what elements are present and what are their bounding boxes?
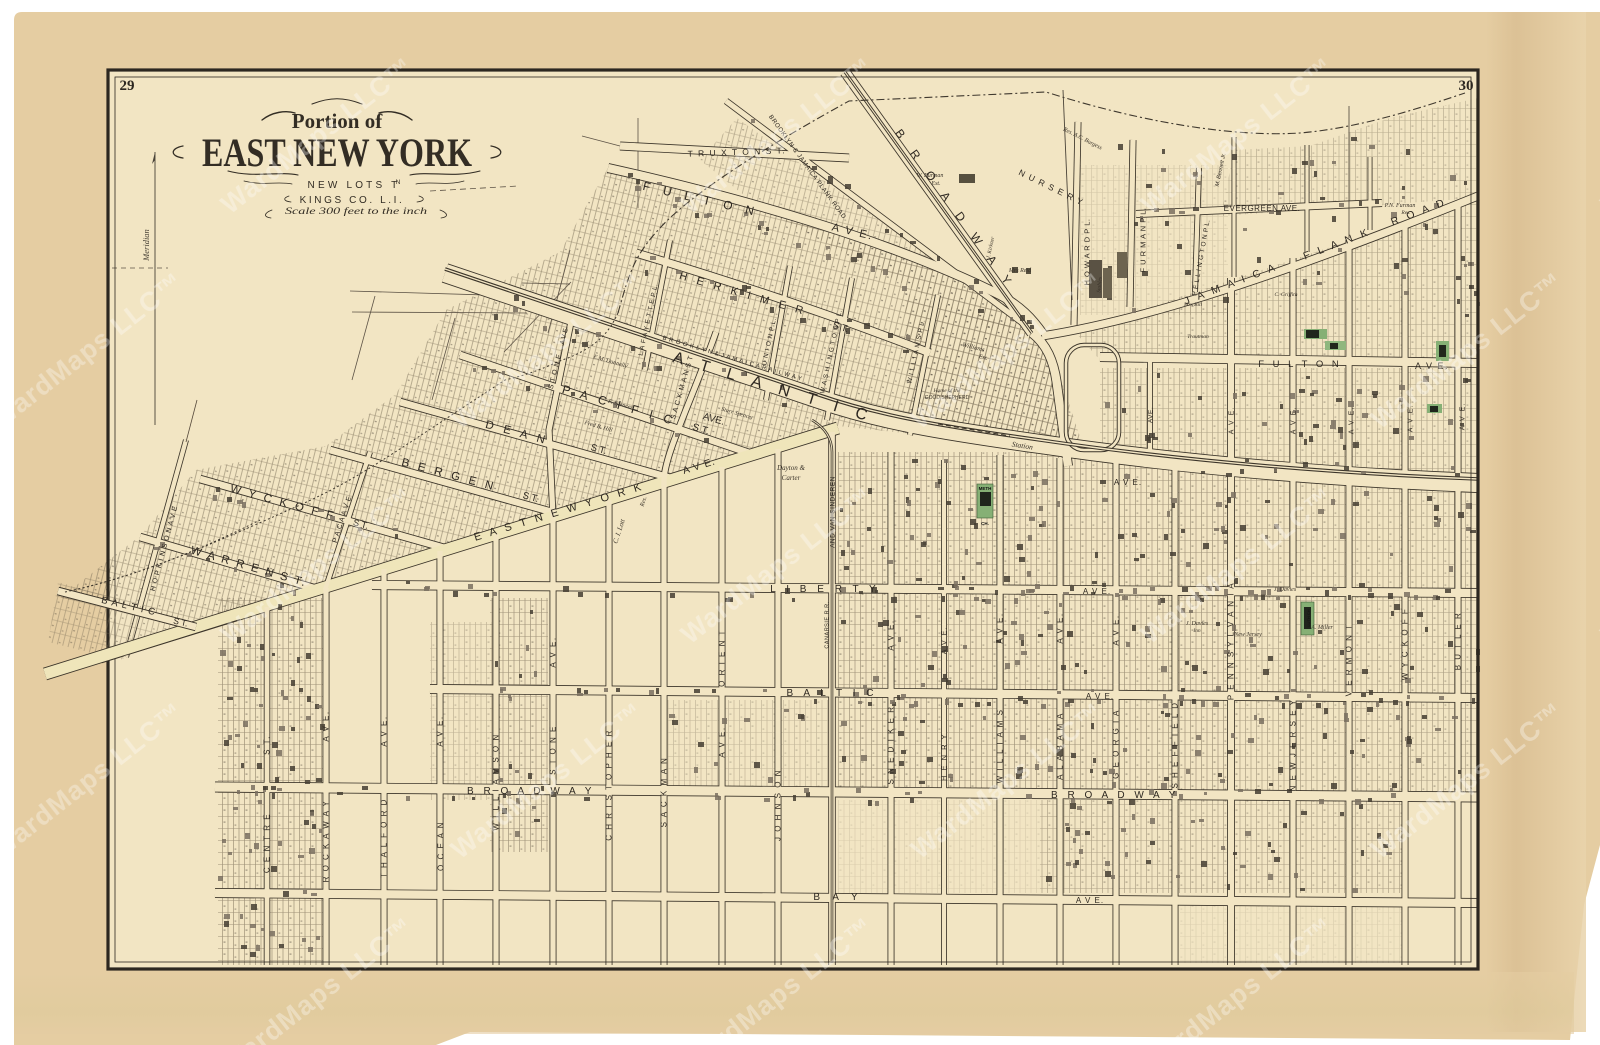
svg-text:Mrs Reid: Mrs Reid [1008,268,1032,274]
svg-text:S N E D I K E R: S N E D I K E R [887,706,896,785]
svg-text:A V E.: A V E. [1112,614,1121,645]
svg-text:LUTH CH: LUTH CH [1306,609,1311,626]
svg-text:A V E.: A V E. [322,710,331,741]
svg-text:WardMaps LLC™: WardMaps LLC™ [1595,911,1600,1045]
svg-text:Carter: Carter [782,474,801,482]
svg-text:NEW LOTS T: NEW LOTS T [308,180,401,191]
svg-text:G E O R G I A: G E O R G I A [1112,709,1121,779]
svg-text:C. Griffith: C. Griffith [1275,291,1298,298]
svg-text:J. Davies: J. Davies [1274,587,1297,593]
svg-text:METH: METH [979,486,992,491]
svg-text:S T.: S T. [263,735,272,755]
svg-text:F U L T O N: F U L T O N [1258,359,1342,370]
svg-text:A V E.: A V E. [1349,406,1356,434]
svg-text:30: 30 [1459,78,1474,94]
svg-text:WardMaps LLC™: WardMaps LLC™ [445,0,649,5]
svg-text:Est.: Est. [930,181,940,187]
svg-text:T H A L F O R D: T H A L F O R D [380,798,389,878]
svg-text:N: N [396,179,401,186]
svg-text:L I B E R T Y: L I B E R T Y [770,584,879,595]
svg-text:CANARSIE R.R.: CANARSIE R.R. [825,601,831,648]
svg-text:Scale 300 feet to the inch: Scale 300 feet to the inch [285,206,427,217]
svg-text:W Y C K O F F: W Y C K O F F [1401,608,1410,681]
svg-text:A V E.: A V E. [1229,406,1236,434]
svg-text:B A Y: B A Y [813,892,862,903]
svg-text:EVERGREEN AVE.: EVERGREEN AVE. [1224,204,1301,213]
svg-text:WardMaps LLC™: WardMaps LLC™ [1365,0,1569,5]
svg-text:A V E.: A V E. [1460,402,1467,430]
svg-text:Meridian: Meridian [141,229,151,262]
svg-text:A V E.: A V E. [1083,587,1111,596]
svg-text:A V E.: A V E. [1056,612,1065,643]
svg-text:S H E F F I E L D: S H E F F I E L D [1171,702,1180,789]
svg-text:A V E.: A V E. [887,619,896,650]
svg-text:V E R M O N T: V E R M O N T [1345,624,1354,697]
svg-text:AVE.: AVE. [1148,407,1155,423]
svg-text:KINGS CO. L.I.: KINGS CO. L.I. [300,195,405,206]
svg-text:J O H N S O N: J O H N S O N [774,769,783,841]
svg-text:A V E.: A V E. [1291,406,1298,434]
svg-text:C E N T R E: C E N T R E [263,813,272,873]
svg-text:N E W J E R S E Y: N E W J E R S E Y [1289,699,1298,792]
svg-text:P E N N S Y L V A N I A: P E N N S Y L V A N I A [1227,582,1236,700]
svg-text:A V E.: A V E. [436,715,445,746]
svg-text:WardMaps LLC™: WardMaps LLC™ [0,0,189,5]
svg-text:Mrs Bill: Mrs Bill [1183,302,1203,308]
svg-text:Trautman: Trautman [1187,334,1209,340]
svg-text:A V E.: A V E. [718,726,727,757]
svg-text:New Jersey: New Jersey [1233,632,1262,638]
svg-text:29: 29 [120,78,135,94]
svg-text:B U T L E R: B U T L E R [1454,612,1463,671]
svg-text:Res.: Res. [1400,210,1410,216]
svg-text:A V E.: A V E. [1076,896,1104,905]
svg-text:W. Furman: W. Furman [917,173,944,179]
svg-text:A V E.: A V E. [996,612,1005,643]
svg-text:A V E.: A V E. [380,715,389,746]
svg-text:A. Miller: A. Miller [1310,625,1333,631]
svg-text:S A C K M A N: S A C K M A N [660,757,669,828]
svg-text:A V E.: A V E. [942,626,949,654]
svg-text:B A L T I C: B A L T I C [786,688,877,699]
svg-text:O R I E N T: O R I E N T [718,629,727,687]
svg-text:R O C K A W A Y: R O C K A W A Y [322,800,331,883]
svg-text:A V E.: A V E. [1114,478,1142,487]
svg-text:P.N. Furman: P.N. Furman [1384,203,1416,209]
svg-text:CH.: CH. [981,521,989,526]
svg-text:F U R M A N P L.: F U R M A N P L. [1139,208,1148,273]
svg-text:WardMaps LLC™: WardMaps LLC™ [905,0,1109,5]
svg-text:A V E.: A V E. [549,636,558,667]
svg-text:O C E A N: O C E A N [437,821,446,871]
svg-text:H E N R Y: H E N R Y [940,733,949,781]
svg-text:Dayton &: Dayton & [776,464,805,472]
svg-text:B R O A D W A Y: B R O A D W A Y [1051,790,1179,801]
svg-text:Inn: Inn [1192,628,1201,634]
